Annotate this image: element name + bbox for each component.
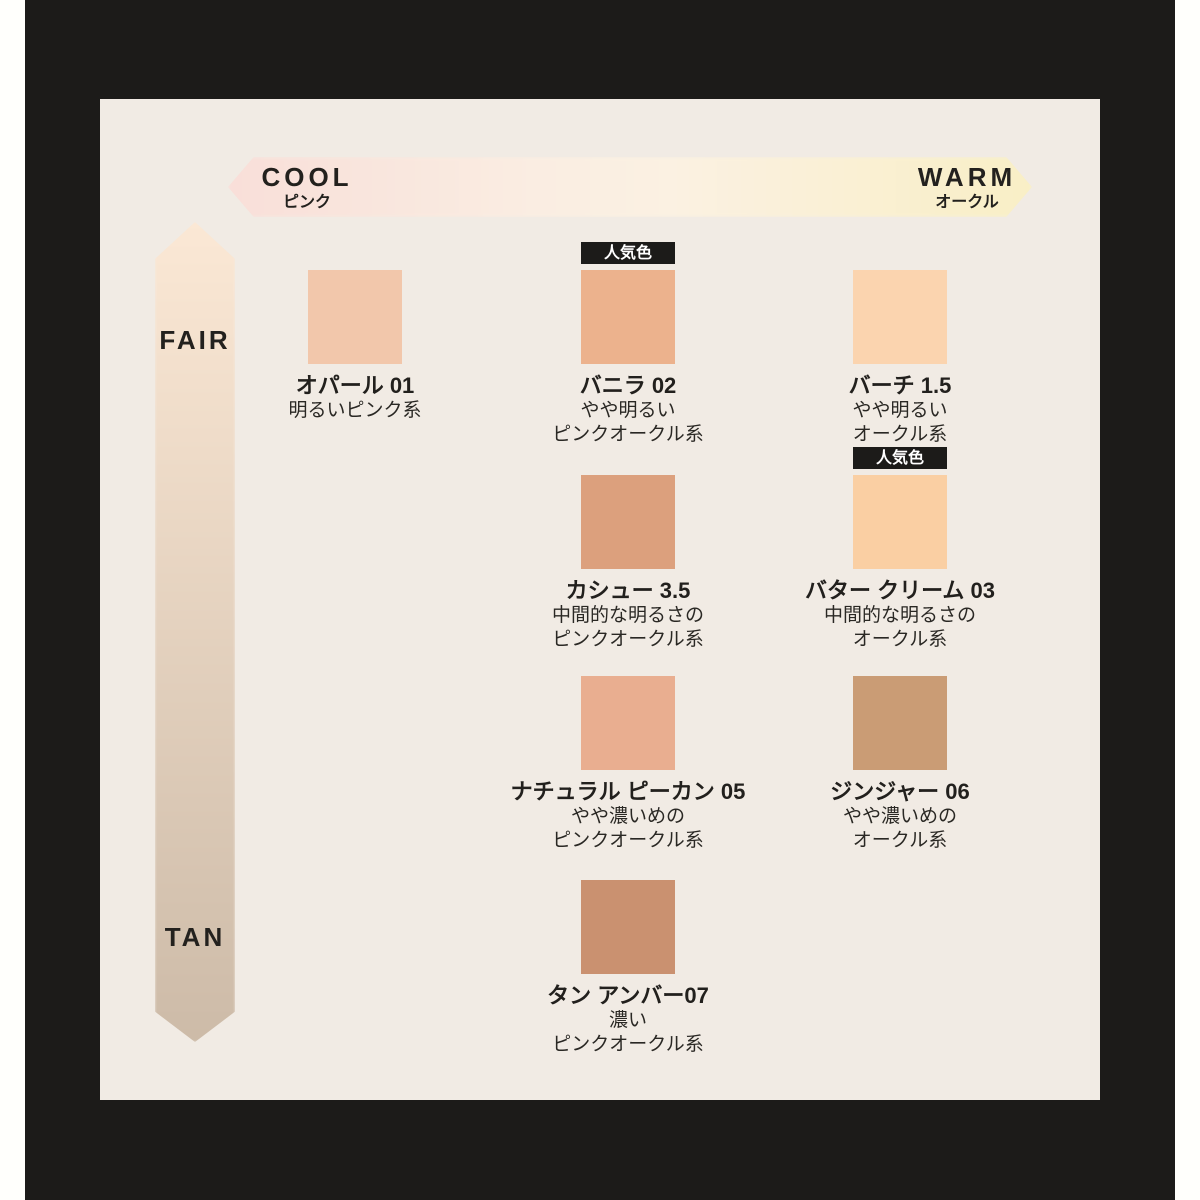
warm-sublabel: オークル xyxy=(877,194,1057,212)
shade-swatch xyxy=(581,880,675,974)
shade-description: 明るいピンク系 xyxy=(205,399,505,423)
shade-name: タン アンバー07 xyxy=(478,983,778,1009)
shade-chart-panel: COOL ピンク WARM オークル FAIR TAN オパール 01 明るいピ… xyxy=(100,99,1100,1100)
shade-name: ジンジャー 06 xyxy=(750,779,1050,805)
shade-swatch: 人気色 xyxy=(853,475,947,569)
shade-name: バター クリーム 03 xyxy=(750,578,1050,604)
shade-name: オパール 01 xyxy=(205,373,505,399)
shade-card-cashew-3-5: カシュー 3.5 中間的な明るさの ピンクオークル系 xyxy=(478,475,778,652)
shade-card-vanilla-02: 人気色 バニラ 02 やや明るい ピンクオークル系 xyxy=(478,270,778,447)
shade-description: 中間的な明るさの xyxy=(478,604,778,628)
shade-description: ピンクオークル系 xyxy=(478,423,778,447)
shade-description: やや濃いめの xyxy=(750,805,1050,829)
shade-name: ナチュラル ピーカン 05 xyxy=(478,779,778,805)
shade-card-ginger-06: ジンジャー 06 やや濃いめの オークル系 xyxy=(750,676,1050,853)
popular-color-badge: 人気色 xyxy=(581,242,675,264)
shade-card-birch-1-5: バーチ 1.5 やや明るい オークル系 xyxy=(750,270,1050,447)
shade-description: 中間的な明るさの xyxy=(750,604,1050,628)
shade-description: オークル系 xyxy=(750,829,1050,853)
warm-axis-label-group: WARM オークル xyxy=(877,163,1057,212)
shade-name: カシュー 3.5 xyxy=(478,578,778,604)
shade-swatch xyxy=(581,676,675,770)
shade-swatch: 人気色 xyxy=(581,270,675,364)
shade-description: ピンクオークル系 xyxy=(478,1033,778,1057)
shade-card-opal-01: オパール 01 明るいピンク系 xyxy=(205,270,505,423)
shade-description: 濃い xyxy=(478,1009,778,1033)
shade-swatch xyxy=(308,270,402,364)
shade-card-butter-cream-03: 人気色 バター クリーム 03 中間的な明るさの オークル系 xyxy=(750,475,1050,652)
shade-card-tan-amber-07: タン アンバー07 濃い ピンクオークル系 xyxy=(478,880,778,1057)
shade-description: オークル系 xyxy=(750,628,1050,652)
shade-description: やや濃いめの xyxy=(478,805,778,829)
shade-description: ピンクオークル系 xyxy=(478,829,778,853)
cool-sublabel: ピンク xyxy=(217,194,397,212)
shade-card-natural-pecan-05: ナチュラル ピーカン 05 やや濃いめの ピンクオークル系 xyxy=(478,676,778,853)
warm-label: WARM xyxy=(877,163,1057,191)
shade-swatch xyxy=(581,475,675,569)
shade-name: バニラ 02 xyxy=(478,373,778,399)
shade-swatch xyxy=(853,270,947,364)
shade-swatch xyxy=(853,676,947,770)
popular-color-badge: 人気色 xyxy=(853,447,947,469)
cool-axis-label-group: COOL ピンク xyxy=(217,163,397,212)
shade-description: やや明るい xyxy=(750,399,1050,423)
tan-label: TAN xyxy=(115,922,275,953)
shade-name: バーチ 1.5 xyxy=(750,373,1050,399)
shade-chart-page: COOL ピンク WARM オークル FAIR TAN オパール 01 明るいピ… xyxy=(0,0,1200,1200)
cool-label: COOL xyxy=(217,163,397,191)
shade-description: やや明るい xyxy=(478,399,778,423)
shade-description: ピンクオークル系 xyxy=(478,628,778,652)
shade-description: オークル系 xyxy=(750,423,1050,447)
